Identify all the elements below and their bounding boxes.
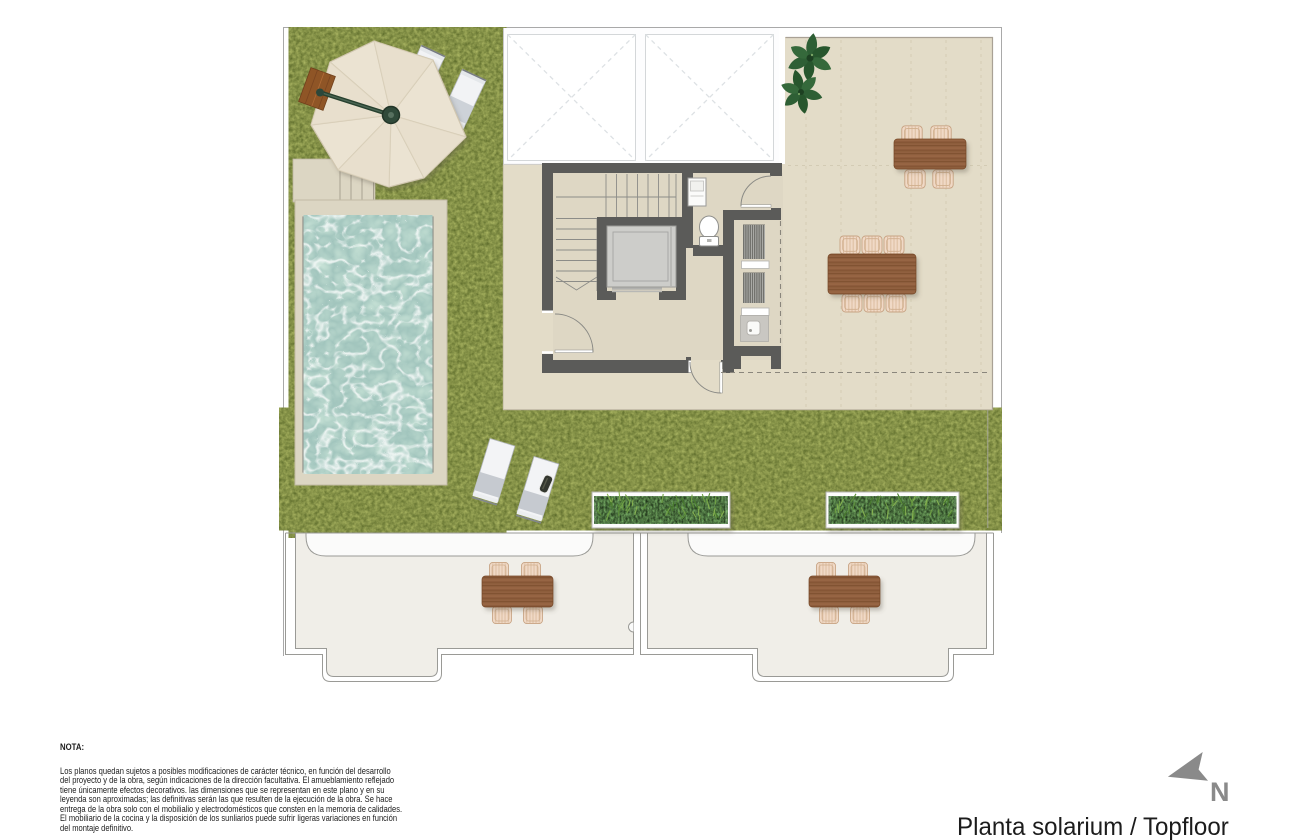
svg-text:N: N [1210,777,1230,807]
